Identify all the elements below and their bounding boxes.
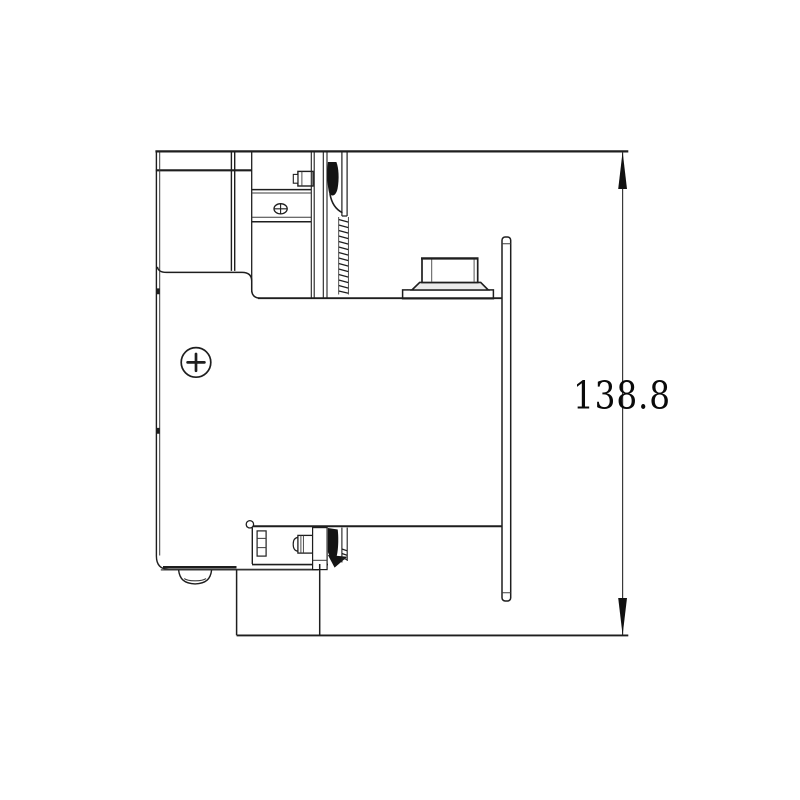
dimension-arrow-up — [618, 152, 627, 190]
phillips-screw — [181, 348, 211, 378]
drawing-sheet: 138.8 — [0, 0, 800, 800]
bottom-contact-tip — [328, 555, 347, 568]
lower-contact-clip — [246, 521, 347, 570]
track-adapter-head — [155, 151, 628, 298]
contact-spring-coil — [339, 217, 349, 295]
clip-pivot — [246, 521, 253, 528]
contact-spring-rod — [342, 152, 347, 216]
dimension-label: 138.8 — [573, 374, 671, 418]
clip-plug — [293, 535, 312, 553]
dimension-arrow-down — [618, 598, 627, 635]
housing-step-edge — [157, 267, 260, 298]
latch-tab — [293, 171, 313, 186]
clip-left-box — [257, 531, 266, 556]
top-contact-hook — [330, 194, 343, 213]
technical-side-view-drawing: 138.8 — [0, 0, 800, 800]
knob-cylinder — [422, 258, 478, 282]
bottom-connector-box — [237, 564, 320, 635]
knob-flange — [412, 282, 488, 290]
top-knob — [403, 258, 494, 298]
clip-right-block — [313, 528, 328, 570]
slot-screw-ellipse — [274, 203, 288, 214]
dimension-annotation: 138.8 — [237, 152, 671, 636]
bottom-foot-bump — [179, 570, 212, 584]
top-contact-black — [327, 162, 338, 195]
mounting-plate — [502, 237, 511, 601]
adapter-right-column — [311, 152, 327, 298]
main-housing — [156, 151, 318, 584]
bottom-contact-black — [328, 528, 338, 559]
